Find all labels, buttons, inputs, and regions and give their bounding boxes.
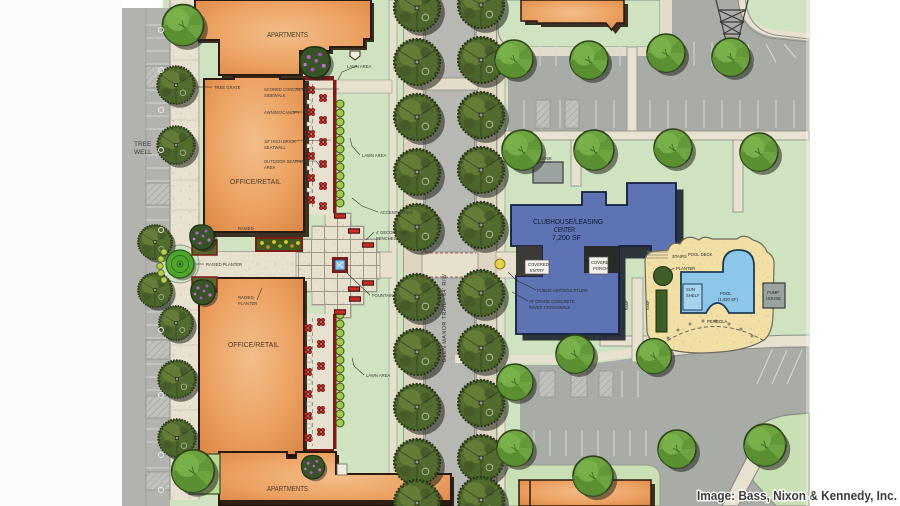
svg-text:AWNING/CANOPY: AWNING/CANOPY <box>264 110 300 115</box>
svg-text:7,200 SF: 7,200 SF <box>552 233 581 242</box>
svg-text:APARTMENTS: APARTMENTS <box>267 484 308 493</box>
svg-text:PERGOLA: PERGOLA <box>707 319 727 324</box>
svg-text:SEATWALL: SEATWALL <box>264 145 287 150</box>
svg-text:RAISED PLANTER: RAISED PLANTER <box>206 262 242 267</box>
svg-text:HOUSE: HOUSE <box>766 296 781 301</box>
svg-text:PLANTER: PLANTER <box>676 266 695 271</box>
svg-text:RAISED: RAISED <box>238 295 254 300</box>
svg-text:(1,320 SF): (1,320 SF) <box>718 297 738 302</box>
svg-text:PLANTER: PLANTER <box>238 301 257 306</box>
svg-text:RAMP: RAMP <box>625 299 629 310</box>
svg-text:OFFICE/RETAIL: OFFICE/RETAIL <box>230 177 281 186</box>
svg-text:COVERED: COVERED <box>528 262 549 267</box>
svg-text:OUTDOOR SEATING: OUTDOOR SEATING <box>264 159 305 164</box>
svg-text:SHELF: SHELF <box>686 293 700 298</box>
svg-text:PUBLIC ART/SCULPTURE: PUBLIC ART/SCULPTURE <box>537 288 588 293</box>
svg-text:PAVER CROSSWALK: PAVER CROSSWALK <box>529 305 571 310</box>
svg-text:WELL: WELL <box>134 149 152 156</box>
svg-text:TREE: TREE <box>134 141 152 148</box>
svg-text:STAIRS: STAIRS <box>672 254 687 259</box>
svg-text:AREA: AREA <box>264 165 276 170</box>
svg-text:POOL: POOL <box>720 291 732 296</box>
svg-text:GLEN MANOR TRAIL - 64' R/W: GLEN MANOR TRAIL - 64' R/W <box>442 273 448 362</box>
svg-text:KIOSK: KIOSK <box>539 156 552 161</box>
svg-text:4' DECORATIVE: 4' DECORATIVE <box>376 230 407 235</box>
svg-text:SCORED CONCRETE: SCORED CONCRETE <box>264 87 307 92</box>
svg-text:COVERED: COVERED <box>591 260 612 265</box>
svg-text:RAISED: RAISED <box>238 226 254 231</box>
svg-text:LAWN AREA: LAWN AREA <box>366 373 390 378</box>
svg-text:SIDEWALK: SIDEWALK <box>264 93 286 98</box>
svg-text:OFFICE/RETAIL: OFFICE/RETAIL <box>228 340 279 349</box>
svg-text:POOL DECK: POOL DECK <box>688 252 712 257</box>
svg-text:PUMP: PUMP <box>767 290 779 295</box>
svg-text:APARTMENTS: APARTMENTS <box>267 30 308 39</box>
svg-text:ENTRY: ENTRY <box>530 268 544 273</box>
svg-text:AT GRADE CONCRETE: AT GRADE CONCRETE <box>529 299 575 304</box>
svg-text:ACCENT BANDS: ACCENT BANDS <box>380 210 413 215</box>
svg-text:18" HIGH BRICK: 18" HIGH BRICK <box>264 139 296 144</box>
svg-text:PLANTER: PLANTER <box>238 232 257 237</box>
svg-text:SUN: SUN <box>686 287 695 292</box>
svg-text:LAWN AREA: LAWN AREA <box>362 153 386 158</box>
svg-text:TREE GRATE: TREE GRATE <box>214 85 241 90</box>
svg-text:BENCHES: BENCHES <box>376 236 396 241</box>
svg-text:PORCH: PORCH <box>593 266 608 271</box>
svg-text:RAMP: RAMP <box>646 299 650 310</box>
svg-text:FOUNTAIN: FOUNTAIN <box>372 293 393 298</box>
svg-text:Image: Bass, Nixon & Kennedy,: Image: Bass, Nixon & Kennedy, Inc. <box>697 488 897 503</box>
